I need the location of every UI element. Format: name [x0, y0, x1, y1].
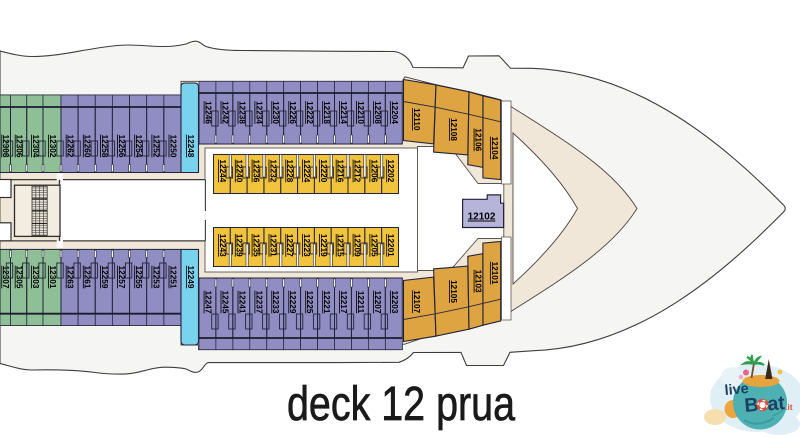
svg-text:12108: 12108 — [449, 118, 458, 141]
svg-text:12229: 12229 — [288, 291, 297, 314]
svg-text:12236: 12236 — [252, 160, 261, 183]
svg-text:12227: 12227 — [285, 234, 294, 257]
svg-text:12240: 12240 — [235, 160, 244, 183]
svg-text:12258: 12258 — [100, 135, 109, 158]
svg-text:12243: 12243 — [218, 234, 227, 257]
svg-text:12245: 12245 — [220, 291, 229, 314]
svg-text:12301: 12301 — [48, 266, 57, 289]
svg-text:12238: 12238 — [237, 101, 246, 124]
svg-text:12254: 12254 — [134, 135, 143, 158]
svg-text:12257: 12257 — [117, 266, 126, 289]
svg-text:12262: 12262 — [66, 135, 75, 158]
svg-text:12307: 12307 — [1, 266, 10, 289]
svg-text:12224: 12224 — [302, 160, 311, 183]
svg-text:12252: 12252 — [151, 135, 160, 158]
svg-text:12217: 12217 — [339, 291, 348, 314]
svg-text:12202: 12202 — [386, 160, 395, 183]
svg-text:12230: 12230 — [271, 101, 280, 124]
svg-text:12221: 12221 — [322, 291, 331, 314]
svg-text:12210: 12210 — [356, 101, 365, 124]
svg-text:12101: 12101 — [490, 262, 499, 285]
svg-text:12242: 12242 — [220, 101, 229, 124]
svg-text:12244: 12244 — [218, 160, 227, 183]
svg-text:12302: 12302 — [48, 135, 57, 158]
svg-text:12231: 12231 — [268, 234, 277, 257]
svg-text:12220: 12220 — [319, 160, 328, 183]
svg-text:12223: 12223 — [302, 234, 311, 257]
svg-text:12215: 12215 — [336, 234, 345, 257]
svg-text:12249: 12249 — [186, 266, 195, 289]
svg-text:12209: 12209 — [353, 234, 362, 257]
svg-text:12263: 12263 — [66, 266, 75, 289]
svg-text:12208: 12208 — [373, 101, 382, 124]
svg-text:12214: 12214 — [339, 101, 348, 124]
svg-text:12241: 12241 — [237, 291, 246, 314]
svg-text:at: at — [767, 392, 787, 415]
svg-text:12222: 12222 — [305, 101, 314, 124]
svg-text:12239: 12239 — [235, 234, 244, 257]
svg-text:12234: 12234 — [254, 101, 263, 124]
svg-text:.it: .it — [785, 402, 793, 412]
svg-text:12308: 12308 — [1, 135, 10, 158]
svg-text:12248: 12248 — [186, 135, 195, 158]
svg-text:12103: 12103 — [474, 270, 483, 293]
svg-text:12250: 12250 — [168, 135, 177, 158]
svg-text:12253: 12253 — [151, 266, 160, 289]
svg-text:12228: 12228 — [285, 160, 294, 183]
svg-text:12260: 12260 — [83, 135, 92, 158]
svg-text:12203: 12203 — [390, 291, 399, 314]
svg-text:deck 12 prua: deck 12 prua — [287, 378, 515, 431]
svg-text:12207: 12207 — [373, 291, 382, 314]
svg-text:12246: 12246 — [204, 101, 213, 124]
svg-text:12211: 12211 — [356, 291, 365, 314]
svg-text:12237: 12237 — [254, 291, 263, 314]
svg-text:12107: 12107 — [412, 290, 421, 313]
svg-text:12255: 12255 — [134, 266, 143, 289]
svg-text:12206: 12206 — [369, 160, 378, 183]
svg-text:12105: 12105 — [449, 280, 458, 303]
svg-text:12104: 12104 — [490, 137, 499, 160]
svg-text:12110: 12110 — [412, 108, 421, 131]
svg-text:12204: 12204 — [390, 101, 399, 124]
svg-text:12251: 12251 — [168, 266, 177, 289]
svg-text:12216: 12216 — [336, 160, 345, 183]
svg-text:12225: 12225 — [305, 291, 314, 314]
svg-text:12106: 12106 — [474, 128, 483, 151]
svg-text:12235: 12235 — [252, 234, 261, 257]
svg-text:12201: 12201 — [386, 234, 395, 257]
svg-text:12256: 12256 — [117, 135, 126, 158]
svg-text:12232: 12232 — [268, 160, 277, 183]
svg-text:12259: 12259 — [100, 266, 109, 289]
svg-text:12212: 12212 — [353, 160, 362, 183]
svg-text:12233: 12233 — [271, 291, 280, 314]
svg-text:12205: 12205 — [369, 234, 378, 257]
svg-text:12218: 12218 — [322, 101, 331, 124]
svg-text:12102: 12102 — [468, 212, 496, 223]
svg-text:12247: 12247 — [204, 291, 213, 314]
svg-text:12219: 12219 — [319, 234, 328, 257]
svg-text:12261: 12261 — [83, 266, 92, 289]
svg-text:12226: 12226 — [288, 101, 297, 124]
